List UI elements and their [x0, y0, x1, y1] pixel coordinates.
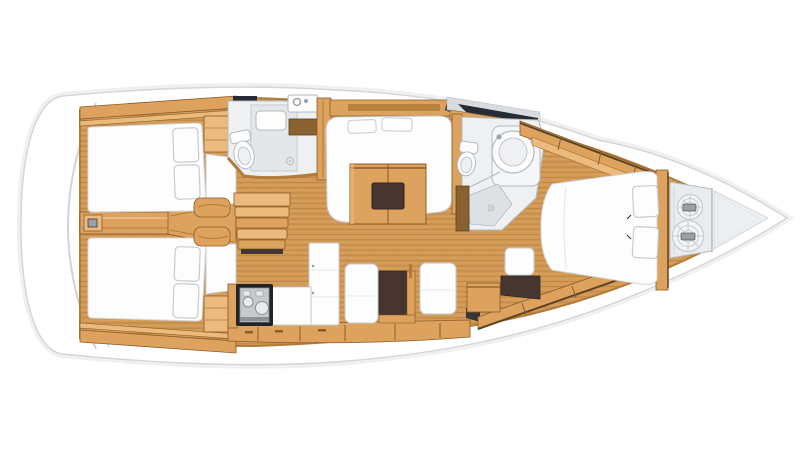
nav-seat — [345, 264, 378, 323]
side-bench — [194, 198, 230, 217]
desk-fiddle — [409, 264, 412, 278]
saloon — [326, 98, 462, 224]
companionway-landing — [234, 193, 290, 206]
desk-trim — [407, 271, 415, 318]
yacht-floorplan-image: Sailing yacht interior layout — top-down… — [0, 0, 800, 449]
pillow — [174, 247, 200, 282]
step-tread — [238, 240, 285, 249]
washbasin-bowl — [499, 138, 527, 166]
nav-seat — [420, 263, 456, 314]
rope-coil — [678, 195, 703, 220]
vanity-seat — [505, 248, 534, 275]
back-cushion — [348, 120, 376, 134]
aft-head — [228, 95, 331, 180]
pillow — [632, 226, 659, 258]
galley-counter — [271, 287, 311, 325]
step-tread — [235, 207, 289, 217]
coil-tie — [683, 204, 696, 211]
coil-tie — [681, 233, 695, 240]
stove-grate — [256, 291, 263, 296]
pillow — [632, 185, 659, 217]
engine-hatch-latch — [88, 219, 97, 227]
shower-drain-dot — [490, 207, 492, 209]
table-highlight — [350, 164, 354, 224]
burner — [243, 297, 253, 307]
locker-knob — [312, 265, 315, 268]
pillow — [173, 128, 199, 163]
saloon-shelf-groove — [348, 104, 440, 111]
pillow — [173, 284, 199, 319]
shower-seat — [256, 111, 286, 130]
pillow — [174, 165, 200, 200]
stove-grate — [243, 291, 250, 296]
stove — [236, 284, 273, 326]
teak-mat — [289, 119, 318, 135]
step-tread — [236, 218, 288, 228]
locker-knob — [312, 292, 315, 295]
rope-coil — [673, 221, 704, 252]
yacht-floorplan-svg: Sailing yacht interior layout — top-down… — [0, 0, 800, 449]
head-door — [456, 186, 469, 231]
chart-desk — [379, 271, 407, 315]
tall-locker — [309, 243, 339, 325]
table-inlay — [372, 183, 404, 209]
desk-base — [379, 315, 415, 323]
burner — [256, 302, 269, 315]
step-tread — [237, 229, 287, 239]
step-shadow — [241, 249, 283, 254]
faucet — [304, 99, 308, 103]
faucet — [497, 135, 502, 140]
locker-handle — [245, 331, 253, 334]
stove-rail — [240, 317, 269, 321]
sink-counter — [288, 95, 318, 112]
vanity-front — [501, 276, 540, 299]
locker-handle — [275, 330, 283, 333]
back-cushion — [382, 118, 412, 132]
shower-drain-dot — [289, 160, 291, 162]
locker-handle — [318, 329, 326, 332]
galley-end-panel — [228, 284, 237, 328]
